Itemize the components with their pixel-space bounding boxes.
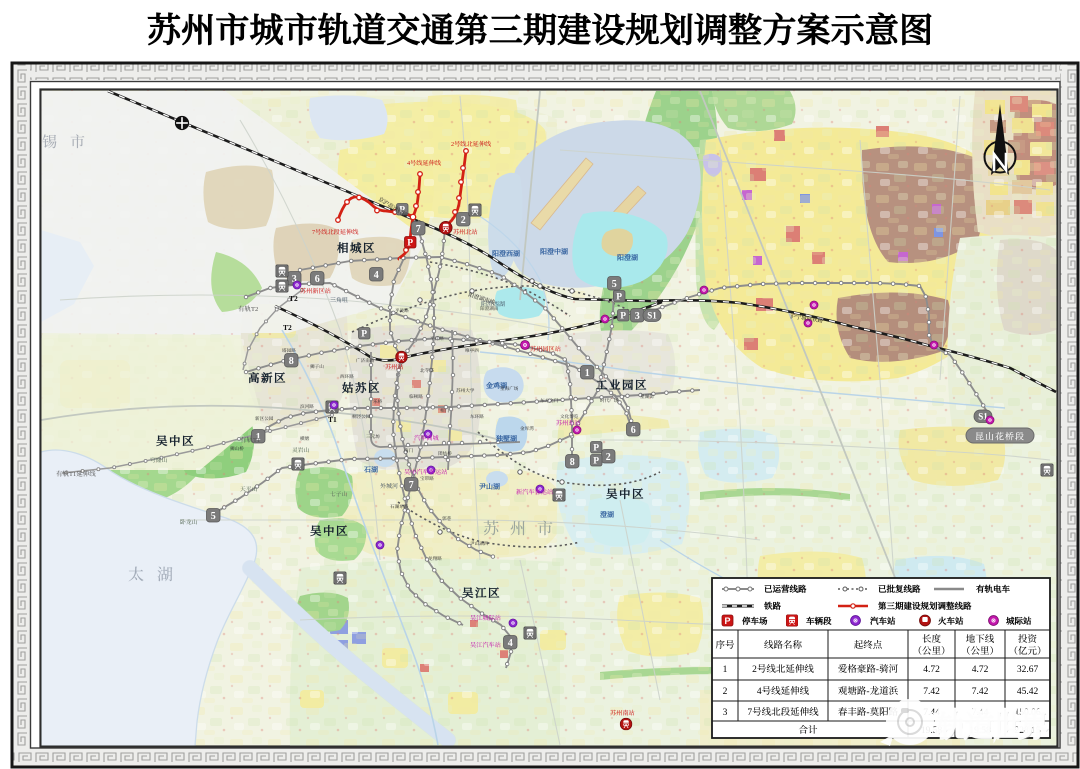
- svg-text:锡市: 锡市: [42, 131, 98, 152]
- svg-text:车辆段: 车辆段: [806, 615, 832, 627]
- svg-text:P: P: [407, 235, 413, 249]
- svg-text:桐泾公园: 桐泾公园: [352, 414, 371, 420]
- svg-text:乐桥: 乐桥: [373, 399, 383, 405]
- svg-text:太湖: 太湖: [128, 562, 186, 585]
- svg-text:（公里）: （公里）: [961, 643, 999, 657]
- svg-text:P: P: [616, 289, 622, 303]
- svg-text:有轨电车: 有轨电车: [976, 583, 1011, 595]
- svg-text:7: 7: [416, 220, 421, 235]
- svg-text:8: 8: [570, 453, 575, 468]
- svg-text:独墅湖: 独墅湖: [495, 434, 517, 444]
- svg-text:吴中区: 吴中区: [310, 523, 349, 539]
- svg-text:T2: T2: [283, 322, 292, 333]
- svg-text:7号线北段延伸线: 7号线北段延伸线: [312, 227, 359, 236]
- svg-text:32.67: 32.67: [1017, 661, 1039, 675]
- svg-text:4: 4: [374, 266, 379, 281]
- svg-text:姑苏区: 姑苏区: [342, 380, 381, 396]
- svg-text:东环路: 东环路: [470, 414, 484, 420]
- svg-text:爱格豪路-骑河: 爱格豪路-骑河: [838, 661, 899, 675]
- svg-text:阳澄中湖: 阳澄中湖: [540, 247, 568, 257]
- svg-text:2: 2: [461, 211, 466, 226]
- svg-text:观塘路-龙道浜: 观塘路-龙道浜: [838, 683, 899, 697]
- svg-text:相城区: 相城区: [337, 240, 376, 256]
- svg-text:天平山: 天平山: [240, 484, 258, 493]
- svg-text:5: 5: [211, 507, 216, 522]
- svg-text:外城河: 外城河: [380, 481, 398, 490]
- svg-text:苏州南站: 苏州南站: [610, 708, 635, 717]
- svg-text:序号: 序号: [715, 637, 735, 651]
- svg-text:火车站: 火车站: [938, 615, 964, 627]
- svg-text:4号线延伸线: 4号线延伸线: [407, 158, 442, 167]
- svg-text:2号线北延伸线: 2号线北延伸线: [451, 139, 492, 148]
- svg-text:城际站: 城际站: [1006, 615, 1032, 627]
- svg-text:卧龙山: 卧龙山: [180, 517, 198, 526]
- svg-text:P: P: [593, 440, 599, 454]
- svg-text:P: P: [361, 326, 367, 340]
- svg-text:（公里）: （公里）: [912, 643, 950, 657]
- svg-text:东方之门: 东方之门: [540, 398, 559, 404]
- svg-text:郭巷: 郭巷: [442, 516, 452, 522]
- svg-text:阳澄西湖: 阳澄西湖: [492, 249, 520, 259]
- svg-text:7: 7: [409, 476, 414, 491]
- svg-text:滨河路: 滨河路: [300, 404, 314, 410]
- svg-text:4.72: 4.72: [972, 661, 989, 675]
- svg-text:团结桥: 团结桥: [438, 451, 452, 457]
- svg-text:宝带路: 宝带路: [420, 476, 434, 482]
- svg-text:2号线北延伸线: 2号线北延伸线: [752, 661, 814, 675]
- svg-text:（亿元）: （亿元）: [1008, 643, 1046, 657]
- svg-text:三角咀: 三角咀: [330, 295, 348, 304]
- svg-text:6: 6: [315, 270, 320, 285]
- svg-text:3: 3: [635, 307, 640, 322]
- svg-text:平泷路: 平泷路: [395, 308, 409, 314]
- svg-text:工业园区: 工业园区: [596, 377, 648, 393]
- svg-text:广济南路: 广济南路: [356, 358, 375, 364]
- svg-text:T1: T1: [328, 414, 337, 425]
- svg-text:4.72: 4.72: [923, 661, 940, 675]
- svg-text:已批复线路: 已批复线路: [878, 583, 921, 595]
- svg-text:西环路: 西环路: [340, 374, 354, 380]
- svg-text:苏州大学: 苏州大学: [456, 388, 475, 394]
- svg-text:有轨T2: 有轨T2: [238, 304, 258, 313]
- svg-text:线路名称: 线路名称: [764, 637, 803, 651]
- svg-text:高新区: 高新区: [248, 370, 287, 386]
- svg-text:临顿路: 临顿路: [409, 394, 423, 400]
- svg-text:6: 6: [631, 421, 636, 436]
- svg-text:合计: 合计: [798, 722, 818, 736]
- svg-text:S1: S1: [647, 309, 657, 322]
- svg-text:龙翔路: 龙翔路: [428, 556, 442, 562]
- svg-text:狮山桥: 狮山桥: [230, 446, 244, 452]
- svg-text:吴江汽车站: 吴江汽车站: [470, 640, 501, 649]
- svg-text:澄湖: 澄湖: [600, 510, 614, 520]
- svg-text:4号线延伸线: 4号线延伸线: [757, 683, 810, 697]
- svg-text:吴中汽车客运站: 吴中汽车客运站: [404, 467, 447, 476]
- svg-text:阳澄湖: 阳澄湖: [617, 253, 638, 263]
- svg-text:唯亭西: 唯亭西: [465, 348, 479, 354]
- svg-text:停车场: 停车场: [742, 615, 768, 627]
- svg-text:苏州站: 苏州站: [385, 362, 404, 371]
- svg-text:2: 2: [606, 448, 611, 463]
- svg-text:汽车站: 汽车站: [869, 615, 896, 627]
- svg-text:星海广场: 星海广场: [500, 386, 519, 392]
- svg-text:南门: 南门: [404, 448, 414, 454]
- svg-text:有轨T1延伸线: 有轨T1延伸线: [56, 469, 96, 478]
- svg-text:3: 3: [723, 704, 728, 718]
- svg-text:横塘: 横塘: [300, 436, 310, 442]
- svg-text:有轨T1: 有轨T1: [240, 435, 260, 444]
- svg-text:苏州市城市轨道交通第三期建设规划调整方案示意图: 苏州市城市轨道交通第三期建设规划调整方案示意图: [147, 3, 933, 52]
- svg-text:阳澄西湖: 阳澄西湖: [481, 299, 505, 308]
- svg-text:7号线北段延伸线: 7号线北段延伸线: [747, 704, 819, 718]
- svg-text:昆山花桥段: 昆山花桥段: [975, 430, 1025, 443]
- svg-text:相门: 相门: [440, 408, 450, 414]
- svg-text:时代广场: 时代广场: [600, 398, 619, 404]
- svg-text:金厍湾: 金厍湾: [520, 426, 534, 432]
- svg-text:穹窿山: 穹窿山: [150, 455, 168, 464]
- svg-text:北寺塔: 北寺塔: [420, 368, 434, 374]
- svg-text:吴中区: 吴中区: [156, 433, 195, 449]
- svg-text:苏州市: 苏州市: [483, 516, 564, 539]
- svg-text:吴江区: 吴江区: [462, 585, 501, 601]
- svg-text:P: P: [620, 308, 626, 322]
- svg-text:轨道世界: 轨道世界: [934, 700, 1047, 744]
- svg-text:石湖东路: 石湖东路: [390, 504, 409, 510]
- svg-text:已运营线路: 已运营线路: [764, 583, 807, 595]
- svg-text:吴江城际站: 吴江城际站: [470, 613, 501, 622]
- svg-text:尹山湖西: 尹山湖西: [470, 541, 489, 547]
- svg-text:七子山: 七子山: [330, 489, 348, 498]
- svg-text:8: 8: [289, 352, 294, 367]
- svg-text:苏州新区站: 苏州新区站: [300, 286, 331, 295]
- svg-text:苏州园区站: 苏州园区站: [530, 344, 561, 353]
- svg-text:文化博览: 文化博览: [560, 414, 579, 420]
- svg-text:7.42: 7.42: [923, 683, 940, 697]
- svg-text:三元坊: 三元坊: [366, 434, 380, 440]
- svg-text:起终点: 起终点: [854, 637, 883, 651]
- svg-text:平江路: 平江路: [430, 336, 444, 342]
- svg-text:2: 2: [723, 683, 728, 697]
- svg-text:1: 1: [723, 661, 728, 675]
- svg-text:苏州北站: 苏州北站: [453, 227, 478, 236]
- svg-text:吴中区: 吴中区: [606, 486, 645, 502]
- svg-text:铁路: 铁路: [763, 600, 782, 612]
- svg-text:塔园路: 塔园路: [282, 348, 296, 354]
- svg-text:第三期建设规划调整线路: 第三期建设规划调整线路: [878, 600, 972, 612]
- svg-text:新汽车客运站: 新汽车客运站: [516, 487, 553, 496]
- svg-text:石湖: 石湖: [363, 465, 378, 475]
- svg-text:4: 4: [508, 634, 513, 649]
- svg-text:P: P: [724, 616, 730, 626]
- svg-text:7.42: 7.42: [972, 683, 989, 697]
- svg-text:尹山湖: 尹山湖: [479, 482, 500, 492]
- svg-text:星湖街: 星湖街: [640, 394, 654, 400]
- svg-text:T2: T2: [289, 293, 298, 304]
- svg-text:狮子山: 狮子山: [310, 364, 324, 370]
- svg-text:45.42: 45.42: [1017, 683, 1039, 697]
- svg-text:汽车商城: 汽车商城: [414, 433, 440, 442]
- svg-text:1: 1: [585, 364, 590, 379]
- svg-text:新区公园: 新区公园: [255, 416, 274, 422]
- svg-text:灵岩山: 灵岩山: [292, 445, 310, 454]
- svg-text:P: P: [593, 453, 599, 467]
